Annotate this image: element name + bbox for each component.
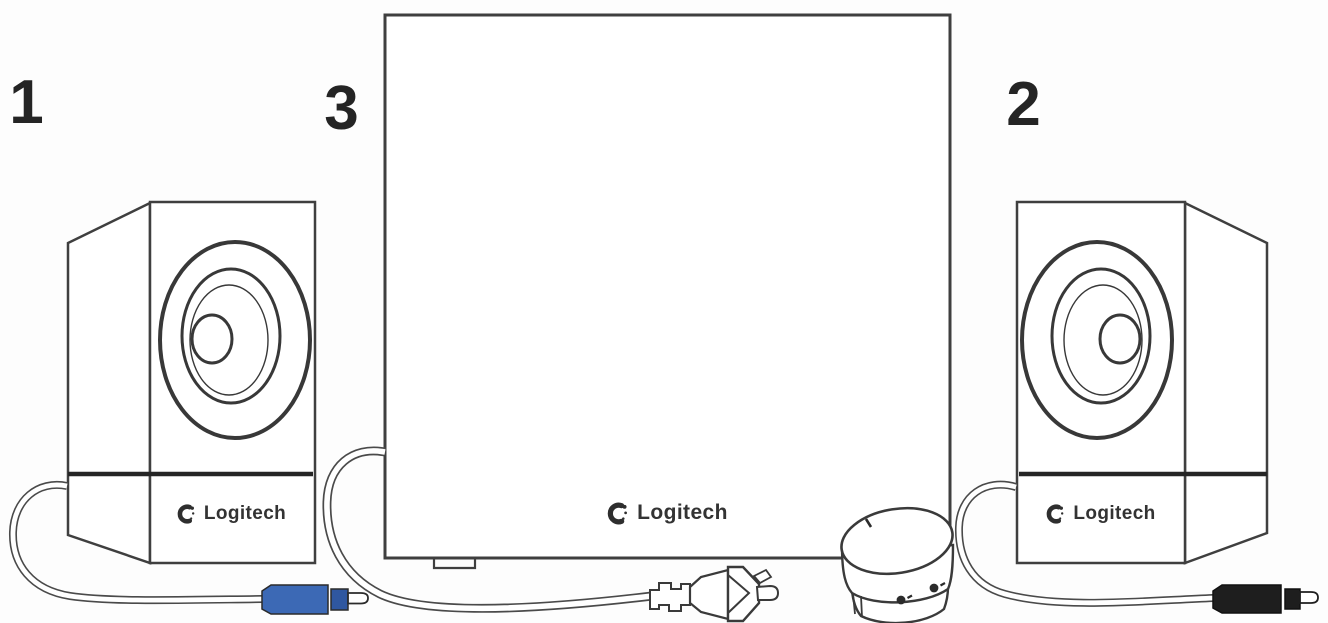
black-rca-body <box>1213 585 1281 613</box>
rca-connector-blue <box>262 585 368 614</box>
diagram-lineart <box>0 0 1328 623</box>
right-speaker-logo: Logitech <box>1017 500 1185 528</box>
subwoofer-cabinet <box>385 15 950 558</box>
plug-strain-relief <box>650 583 690 611</box>
step-label-subwoofer: 3 <box>313 78 369 140</box>
left-speaker-logo: Logitech <box>150 500 313 528</box>
brand-wordmark: Logitech <box>1073 503 1155 525</box>
blue-rca-collar <box>331 589 348 610</box>
plug-body <box>690 570 728 619</box>
plug-prong <box>757 586 778 600</box>
subwoofer-logo: Logitech <box>385 499 950 527</box>
power-plug <box>650 567 778 621</box>
brand-wordmark: Logitech <box>204 503 286 525</box>
step-label-right-speaker: 2 <box>995 74 1051 136</box>
setup-diagram: 1 3 2 Logitech Logitech Logitech <box>0 0 1328 623</box>
rca-connector-black <box>1213 585 1318 613</box>
black-rca-collar <box>1285 589 1300 609</box>
step-label-left-speaker: 1 <box>0 72 54 134</box>
blue-rca-body <box>262 585 328 614</box>
left-speaker-side-panel <box>68 203 150 563</box>
black-rca-pin <box>1300 592 1318 603</box>
logitech-logo-icon <box>1046 504 1066 524</box>
logitech-logo-icon <box>607 502 630 525</box>
brand-wordmark: Logitech <box>637 501 728 525</box>
right-speaker-side-panel <box>1185 203 1267 563</box>
subwoofer <box>385 15 950 568</box>
blue-rca-pin <box>348 593 368 604</box>
logitech-logo-icon <box>177 504 197 524</box>
